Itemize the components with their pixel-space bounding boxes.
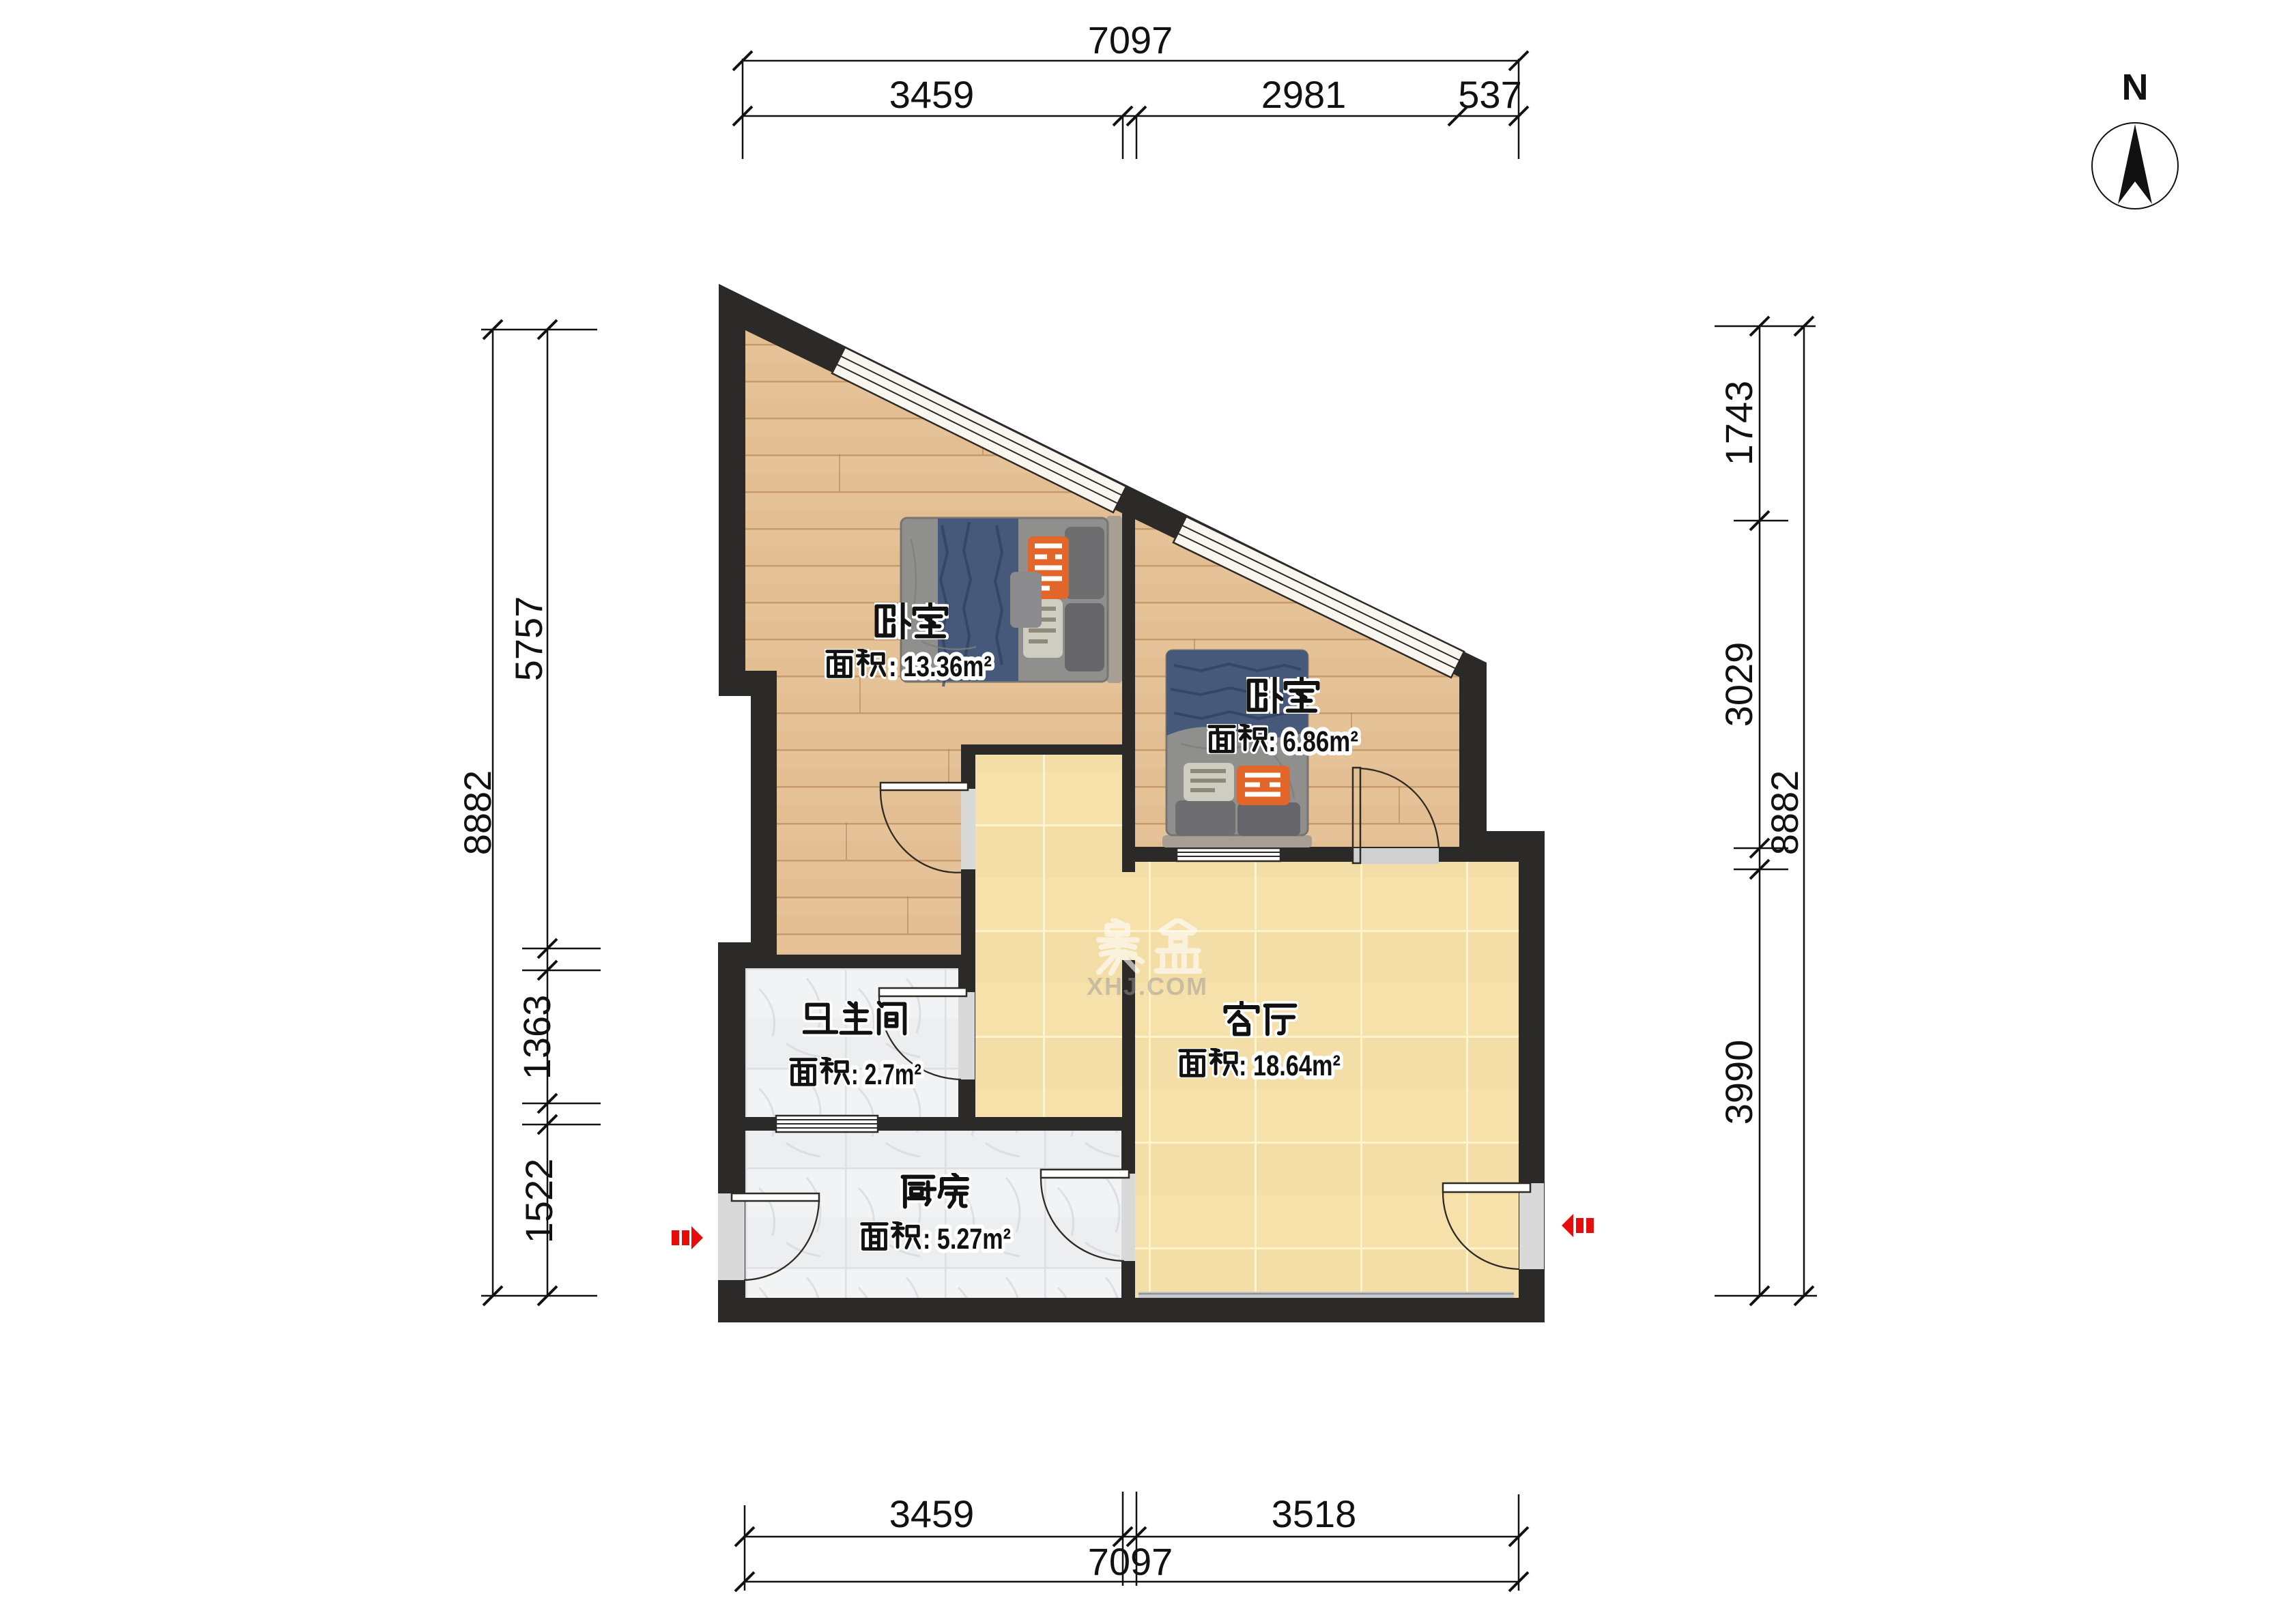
svg-text:3459: 3459 — [889, 1492, 975, 1535]
svg-text:: 2.7m²: : 2.7m² — [851, 1058, 921, 1091]
svg-text:8882: 8882 — [1763, 770, 1806, 856]
svg-text:1522: 1522 — [517, 1159, 560, 1244]
svg-text:1743: 1743 — [1717, 381, 1760, 466]
svg-text:: 13.36m²: : 13.36m² — [889, 650, 992, 683]
svg-text:7097: 7097 — [1088, 1540, 1173, 1583]
svg-text:3459: 3459 — [889, 73, 975, 116]
svg-text:3029: 3029 — [1717, 642, 1760, 727]
svg-text:3990: 3990 — [1717, 1040, 1760, 1125]
svg-text:7097: 7097 — [1088, 18, 1173, 61]
svg-text:: 6.86m²: : 6.86m² — [1268, 725, 1358, 758]
svg-text:2981: 2981 — [1261, 73, 1347, 116]
svg-text:537: 537 — [1458, 73, 1521, 116]
svg-text:5757: 5757 — [507, 596, 550, 682]
svg-text:: 18.64m²: : 18.64m² — [1239, 1049, 1341, 1082]
svg-text:N: N — [2122, 67, 2149, 108]
svg-text:1363: 1363 — [515, 995, 558, 1080]
svg-text:8882: 8882 — [456, 770, 499, 856]
svg-text:XHJ.COM: XHJ.COM — [1087, 972, 1208, 1000]
svg-text:: 5.27m²: : 5.27m² — [923, 1223, 1011, 1256]
svg-text:3518: 3518 — [1272, 1492, 1357, 1535]
